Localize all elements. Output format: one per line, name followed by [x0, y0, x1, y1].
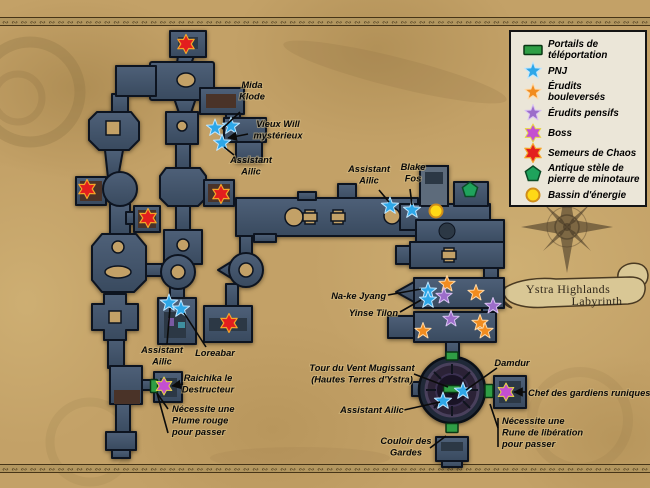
legend-label: Érudits bouleversés [548, 81, 640, 103]
bouleverse-marker [525, 84, 541, 99]
erudit-bouleverse-star-icon [518, 82, 548, 102]
legend-item-pensif: Érudits pensifs [518, 103, 640, 123]
annotation-text: Rune de libération [502, 428, 583, 438]
annotation-text: pour passer [171, 427, 227, 437]
svg-text:∾ ∾ ∾ ∾ ∾ ∾ ∾ ∾ ∾ ∾ ∾ ∾ ∾ ∾ ∾: ∾ ∾ ∾ ∾ ∾ ∾ ∾ ∾ ∾ ∾ ∾ ∾ ∾ ∾ ∾ ∾ ∾ ∾ ∾ ∾ … [2, 466, 648, 474]
legend-label: Érudits pensifs [548, 108, 619, 119]
annotation-text: Klode [239, 92, 265, 102]
erudit-pensif-star-icon [518, 103, 548, 123]
legend-item-energie: Bassin d'énergie [518, 185, 640, 205]
boss-star-icon [518, 123, 548, 143]
pnj-marker [206, 119, 223, 135]
annotation-text: Tour du Vent Mugissant [309, 363, 415, 373]
stele-marker [525, 166, 540, 181]
annotation-text: (Hautes Terres d'Ystra) [311, 375, 413, 385]
annotation-text: Na-ke Jyang [331, 291, 386, 301]
annotation-chef-gardiens: Chef des gardiens runiques [514, 388, 650, 398]
boss-marker [525, 124, 541, 142]
legend-item-portail: Portails de téléportation [518, 39, 640, 61]
annotation-text: Gardes [390, 448, 422, 458]
energie-marker [527, 189, 540, 202]
legend-item-pnj: PNJ [518, 61, 640, 81]
annotation-text: Ailic [240, 167, 261, 177]
annotation-text: Fos [405, 174, 422, 184]
portail-marker [524, 46, 542, 55]
annotation-text: mystérieux [253, 131, 303, 141]
legend-item-stele: Antique stèle de pierre de minotaure [518, 163, 640, 185]
annotation-text: Plume rouge [172, 416, 228, 426]
annotation-text: Blake [401, 162, 426, 172]
annotation-text: Assistant [347, 164, 391, 174]
legend-item-semeur: Semeurs de Chaos [518, 143, 640, 163]
annotation-text: Mida [241, 80, 262, 90]
annotation-text: Ailic [358, 176, 379, 186]
annotation-text: Couloir des [380, 436, 431, 446]
pnj-marker [524, 62, 541, 78]
teleport-portal-icon [518, 40, 548, 60]
legend-label: Semeurs de Chaos [548, 148, 636, 159]
legend-label: PNJ [548, 66, 567, 77]
title-banner: Ystra Highlands Labyrinth [501, 263, 648, 308]
pensif-marker [525, 105, 541, 120]
legend: Portails de téléportationPNJÉrudits boul… [509, 30, 647, 207]
annotation-text: Assistant [229, 155, 273, 165]
annotation-text: Destructeur [182, 385, 236, 395]
svg-text:∾ ∾ ∾ ∾ ∾ ∾ ∾ ∾ ∾ ∾ ∾ ∾ ∾ ∾ ∾: ∾ ∾ ∾ ∾ ∾ ∾ ∾ ∾ ∾ ∾ ∾ ∾ ∾ ∾ ∾ ∾ ∾ ∾ ∾ ∾ … [2, 19, 648, 27]
border-band-top: ∾ ∾ ∾ ∾ ∾ ∾ ∾ ∾ ∾ ∾ ∾ ∾ ∾ ∾ ∾ ∾ ∾ ∾ ∾ ∾ … [0, 17, 650, 27]
semeur-chaos-star-icon [518, 143, 548, 163]
annotation-text: Raichika le [184, 373, 233, 383]
energie-marker [430, 205, 443, 218]
map-title-line2: Labyrinth [572, 294, 623, 308]
legend-label: Portails de téléportation [548, 39, 607, 61]
annotation-text: Ailic [151, 357, 172, 367]
pnj-star-icon [518, 61, 548, 81]
portail-marker [446, 352, 458, 360]
portail-marker [446, 424, 458, 433]
annotation-text: Assistant Ailic [339, 405, 405, 415]
legend-label: Boss [548, 128, 572, 139]
annotation-text: pour passer [501, 439, 557, 449]
annotation-text: Damdur [494, 358, 531, 368]
annotation-text: Vieux Will [256, 119, 300, 129]
energy-pool-icon [518, 185, 548, 205]
border-band-bottom: ∾ ∾ ∾ ∾ ∾ ∾ ∾ ∾ ∾ ∾ ∾ ∾ ∾ ∾ ∾ ∾ ∾ ∾ ∾ ∾ … [0, 464, 650, 474]
legend-item-bouleverse: Érudits bouleversés [518, 81, 640, 103]
annotation-text: Nécessite une [502, 416, 565, 426]
map-canvas: ∾ ∾ ∾ ∾ ∾ ∾ ∾ ∾ ∾ ∾ ∾ ∾ ∾ ∾ ∾ ∾ ∾ ∾ ∾ ∾ … [0, 0, 650, 488]
annotation-text: Loreabar [195, 348, 236, 358]
legend-item-boss: Boss [518, 123, 640, 143]
legend-label: Bassin d'énergie [548, 190, 626, 201]
legend-label: Antique stèle de pierre de minotaure [548, 163, 639, 185]
annotation-text: Chef des gardiens runiques [528, 388, 650, 398]
portail-marker [485, 385, 493, 398]
annotation-text: Assistant [140, 345, 184, 355]
minotaur-stele-icon [518, 164, 548, 184]
semeur-marker [525, 144, 541, 163]
annotation-text: Yinse Tilon [349, 308, 398, 318]
annotation-text: Nécessite une [172, 404, 235, 414]
